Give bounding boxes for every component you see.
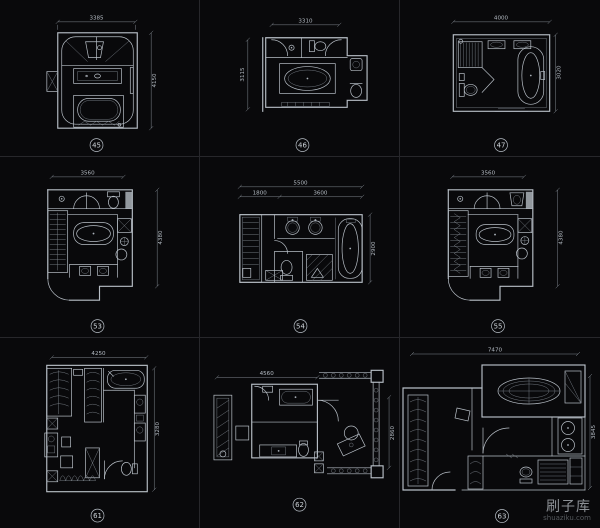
wardrobe-left [214,395,249,460]
shower [59,193,99,209]
dim-side-value: 2860 [390,425,396,440]
bathtub [280,64,336,94]
vanity [74,69,122,84]
dimension-top: 5500 1800 3600 [238,180,364,198]
dimension-top: 3560 [50,170,126,178]
double-sinks [470,266,518,278]
dim-side-value: 4150 [152,73,158,88]
room-walls [240,215,362,283]
plan-46-drawing: 3310 3115 [200,0,399,156]
plan-number: 54 [296,323,305,331]
threshold-hatch [282,102,330,106]
plan-cell-46: 3310 3115 [200,0,400,157]
plan-number-badge: 62 [293,498,306,511]
plan-cell-61: 4250 3280 [0,338,200,528]
dimension-right: 3280 [152,366,161,491]
dimension-right: 2860 [387,395,396,470]
toilet [309,41,325,52]
dim-sub1-value: 1800 [253,190,268,196]
dim-side-value: 4380 [559,230,565,245]
watermark-url: shuaziku.com [543,515,591,523]
dim-top-value: 7470 [488,348,503,354]
dimension-right: 2900 [368,213,377,285]
wardrobe-left [47,368,72,429]
bathtub [338,219,362,279]
plan-sheet-grid: 3385 4150 [0,0,600,528]
room-walls [448,190,533,300]
plan-number-badge: 47 [495,139,508,152]
washer-column [570,458,582,484]
double-round-sinks [278,217,335,238]
shower [62,37,134,66]
bathtub [107,370,144,388]
plan-number-badge: 63 [496,510,509,523]
wardrobe-middle [74,368,102,422]
plan-53-drawing: 3560 4380 [0,157,199,337]
cabinet-bottom [61,448,100,478]
plan-cell-53: 3560 4380 [0,157,200,338]
wardrobe-small [468,456,483,489]
bathtub [518,47,545,105]
plan-cell-55: 3560 4380 [400,157,600,338]
plan-cell-45: 3385 4150 [0,0,200,157]
plan-number: 53 [93,323,102,331]
toilet [107,192,132,209]
dim-side-value: 2900 [371,241,377,256]
appliances-right [350,59,362,98]
vanity-left [45,433,71,457]
plan-number: 63 [498,513,507,521]
plan-cell-54: 5500 1800 3600 2900 [200,157,400,338]
tv-unit [455,408,470,421]
tub-room [68,215,118,265]
dimension-top: 3310 [270,18,342,26]
dimension-top: 3385 [56,15,137,29]
dimension-right: 4380 [155,188,164,288]
plan-54-drawing: 5500 1800 3600 2900 [200,157,399,337]
shower [289,45,294,50]
bathtub [74,95,124,127]
toilet [459,74,477,97]
wardrobe [48,211,68,273]
dim-side-value: 4380 [158,230,164,245]
bench [266,270,283,280]
plan-number-badge: 46 [296,139,309,152]
spa-tub [498,378,560,404]
double-sinks [558,418,582,454]
shower [458,193,500,209]
doors [432,428,518,490]
watermark: 刷子库 shuaziku.com [543,500,591,523]
dimension-top: 4000 [451,15,551,23]
plan-number-badge: 45 [90,139,103,152]
wardrobe [448,211,468,277]
fixtures-right [116,219,131,260]
double-vanity [488,41,531,49]
room-walls [48,190,133,300]
dim-top-value: 3310 [298,18,313,24]
toilet [299,441,309,456]
wardrobe [240,215,262,283]
dimension-top: 3560 [450,170,526,178]
plan-number: 45 [92,142,101,150]
dimension-top: 7470 [410,348,580,357]
sinks-right [134,395,145,441]
cabinet-left [47,72,58,92]
dim-top-value: 3560 [81,170,96,176]
shower [458,39,494,92]
plan-62-drawing: 4560 2860 [200,338,399,528]
dimension-top: 4250 [50,351,149,359]
dimension-right: 3020 [554,33,563,113]
door-arcs [272,38,342,58]
bedroom-walls-chain [314,370,383,477]
plan-number: 47 [497,142,506,150]
dimension-left: 3115 [240,38,250,112]
plan-45-drawing: 3385 4150 [0,0,199,156]
vanity [260,445,297,457]
bathtub [280,389,313,405]
plan-61-drawing: 4250 3280 [0,338,199,528]
toilet [104,461,137,479]
plan-cell-62: 4560 2860 [200,338,400,528]
plan-number: 55 [494,323,503,331]
dim-top-value: 3560 [481,170,496,176]
dim-sub2-value: 3600 [313,190,328,196]
double-sinks [70,264,118,277]
wardrobe-left [408,395,428,486]
dim-side-value: 3020 [557,65,563,80]
plan-number: 62 [295,501,304,509]
plan-number: 61 [93,512,102,520]
dim-top-value: 4250 [91,351,106,357]
plan-number-badge: 55 [492,320,505,333]
plan-cell-47: 4000 3020 [400,0,600,157]
plan-55-drawing: 3560 4380 [400,157,600,337]
chair-and-desk [337,426,365,456]
dim-side-value: 3845 [591,424,597,439]
dimension-right: 3845 [588,374,597,490]
toilet [520,467,532,483]
room-walls [263,38,367,112]
watermark-logo: 刷子库 [543,500,591,515]
dimension-right: 4380 [556,188,565,288]
dim-side-value: 3280 [155,421,161,436]
niche-right [130,68,133,94]
dim-top-value: 5500 [293,180,308,186]
shower [306,254,332,280]
dim-top-value: 4000 [494,15,509,21]
plan-number: 46 [298,142,307,150]
door-arc [317,400,338,421]
toilet [510,192,533,209]
dim-top-value: 4560 [260,371,275,377]
plan-47-drawing: 4000 3020 [400,0,600,156]
steps [565,371,581,403]
tub-room [468,215,518,267]
shower [538,460,568,484]
plan-number-badge: 54 [294,320,307,333]
plan-number-badge: 53 [91,320,104,333]
dimension-right: 4150 [149,31,158,130]
plan-number-badge: 61 [91,509,104,522]
dim-side-value: 3115 [240,67,246,82]
dim-top-value: 3385 [89,15,104,21]
fixtures-right [516,219,531,259]
dimension-top: 4560 [215,371,319,379]
